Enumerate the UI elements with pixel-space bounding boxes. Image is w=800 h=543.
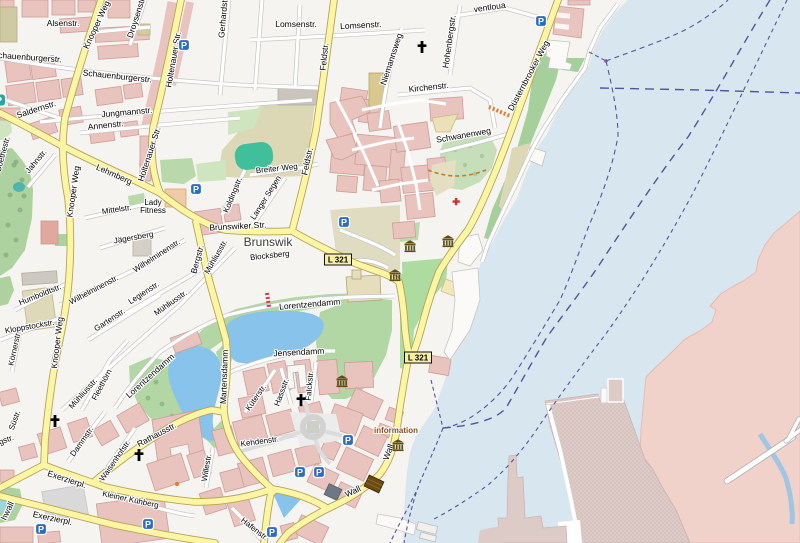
svg-text:Brunswik: Brunswik [244, 235, 294, 249]
svg-text:information: information [374, 426, 418, 435]
svg-text:P: P [0, 96, 2, 106]
svg-text:Lomsenstr.: Lomsenstr. [275, 19, 317, 29]
svg-text:Alsenstr.: Alsenstr. [47, 18, 80, 28]
svg-text:Fitness: Fitness [140, 206, 166, 215]
svg-text:L 321: L 321 [328, 256, 349, 265]
svg-text:Martensdamm: Martensdamm [218, 350, 230, 405]
svg-text:L 321: L 321 [408, 354, 429, 363]
